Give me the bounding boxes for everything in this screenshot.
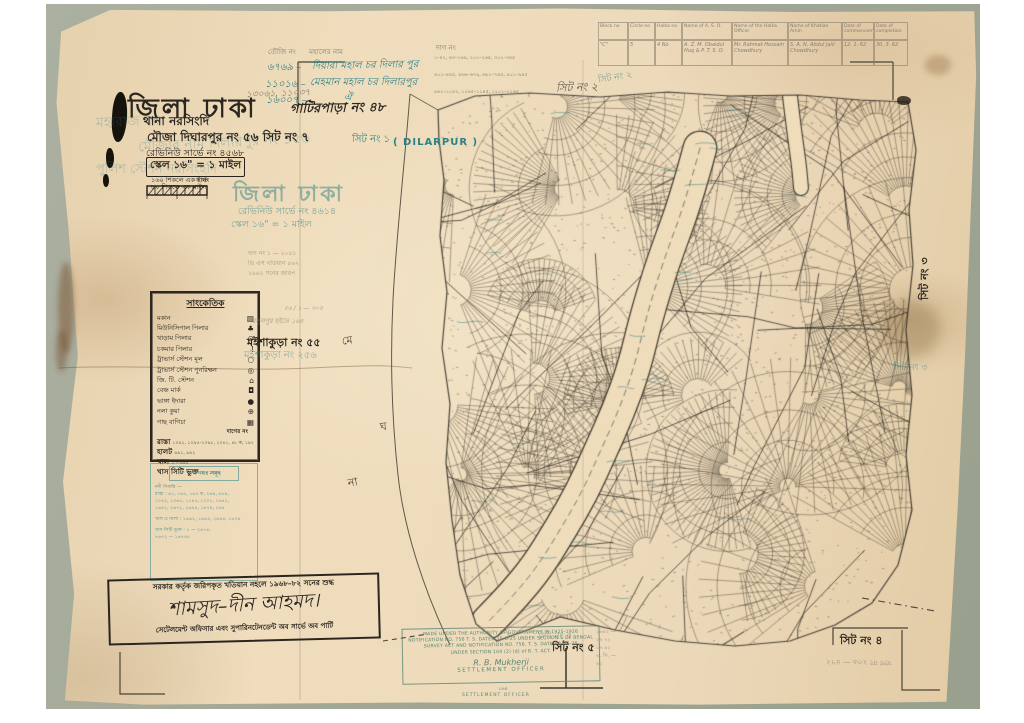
survey-cell: "C" (598, 40, 628, 66)
survey-cell: 12. 1. 62 (842, 40, 874, 66)
survey-col-header: Halka no (655, 22, 682, 40)
legend-box: সাংকেতিক মকান▨ মিউনিসিপাল পিলার♣ খাড়াম … (150, 291, 260, 462)
scale-line: স্কেল ১৬" = ১ মাইল (146, 157, 245, 177)
river-name-letter: ঘ (379, 418, 387, 438)
boundary-dag-numbers: ৬৯১, ৬৯২ (174, 451, 195, 456)
survey-col-header: Block no (598, 22, 628, 40)
touji-row-name: মেহমান মহাল চর দিলারপুর (310, 75, 417, 92)
well-icon: ● (247, 398, 254, 405)
survey-col-header: Date of completion (874, 22, 908, 40)
legend-item: খাড়াম পিলার⊙ (157, 334, 254, 344)
sheet-4-reversed-note: দাগ নং ২৩৬ — ৪৭২ (826, 655, 891, 667)
dag-block-line: নদী সিকস্তি — (155, 484, 253, 491)
scanned-cadastral-map-sheet: মহারাজ নর মৌজার নাম দিলারপুর নং ১৫৬ পুলি… (0, 0, 1024, 723)
touji-row-name: ঐ (344, 90, 352, 107)
boundary-dag-numbers: ১০৯২, ১০৯৫–১০৯৮, ২০৪১, ৪৮ ক, ১৯২ (173, 441, 254, 446)
boundary-label: রাস্তা (157, 437, 170, 446)
pencil-number-column: ১৬৪২ — ২৬ ৭২ ১৬ ৯২ এ. সি. — ৪২ (596, 628, 616, 668)
legend-item-label: গাছ বাগিচা (157, 417, 186, 428)
attestation-stamp-box: সরকার কর্তৃক জরিপকৃত খতিয়ান নহলে ১৯৬৮–৮… (107, 572, 381, 645)
legend-item: মকান▨ (157, 313, 254, 323)
pencil-note: ১৯৬২ সনের জরিপ (248, 268, 295, 279)
legend-item: ভাঙ্গা ইদারা● (157, 396, 254, 406)
stamp-below-title: SETTLEMENT OFFICER (462, 693, 530, 698)
sheet-4-label: সিট নং ৪ (840, 632, 883, 651)
touji-table-header: তৌজি নং মহালের নাম (268, 46, 343, 58)
survey-col-header: Name of A. S. O. (682, 22, 732, 40)
dag-block-line: রাস্তা : ৬১, ১৬২, ১৬৭ ক, ২৬৯, ৬৮৯, (155, 491, 253, 498)
sheet-3-label-teal: সিট নং ৩ (893, 360, 927, 375)
dag-block-line: ১৬৯২, ২৬৭২, ২৬৯৪, ১৬৭৯, ২৬৫ (155, 505, 253, 512)
river-name-letter: মে (341, 331, 354, 351)
survey-cell: 4 No (655, 40, 682, 66)
legend-item-label: বেঞ্চ মার্ক (157, 385, 181, 396)
sheet-3-label: সিট নং ৩ (916, 257, 935, 300)
gt-station-icon: ⌂ (249, 377, 254, 384)
legend-item-label: নলা কুয়া (157, 406, 180, 417)
touji-row-dags: ১–৪২, ৬৩–১৬৯, ২০১–২৬৫, ৩০১–৩৪৫ (434, 56, 584, 62)
sheet-2-label: সিট নং ২ (556, 78, 598, 98)
survey-cell: Mr. Rahmat Hossain Chowdhury (732, 40, 788, 66)
village-name-moishakura-teal: মইশাকুড়া নং ২৫৬ (244, 348, 317, 365)
survey-cell: 5 (628, 40, 655, 66)
sheet-no-1-teal: সিট নং ১ (352, 132, 390, 149)
legend-item: মিউনিসিপাল পিলার♣ (157, 323, 254, 333)
ink-blot (897, 96, 911, 105)
mouza-line: মৌজা দিঘারপুর নং ৫৬ সিট নং ৭ (147, 129, 309, 149)
bench-mark-icon: ◘ (248, 387, 254, 394)
touji-row-no: ৬৭৬৯ – (267, 60, 301, 77)
touji-row-no: ১৬০০৭ – (266, 93, 307, 110)
survey-cell: 30. 3. 62 (874, 40, 908, 66)
legend-dag-header: দাগের নং (157, 428, 248, 437)
survey-col-header: Name of the Halka Officer (732, 22, 788, 40)
ghost-scale-line: স্কেল ১৬" = ১ মাইল (231, 218, 312, 233)
dilarpur-latin-label: ( DILARPUR ) (393, 137, 478, 148)
legend-boundary-row: রাস্তা ১০৯২, ১০৯৫–১০৯৮, ২০৪১, ৪৮ ক, ১৯২ (157, 437, 254, 447)
touji-row-name: দিয়ারা মহাল চর দিলার পুর (312, 57, 419, 76)
survey-progress-table: Block no Circle no Halka no Name of A. S… (598, 22, 908, 66)
pencil-number-line: ১৬ ৯২ (596, 644, 616, 652)
dag-block-line: ১০৪২, ১০৬৫, ১১৪৫, ১২০১, ১৬৪২, (155, 498, 253, 505)
legend-title: সাংকেতিক (157, 296, 254, 311)
graphic-scale-bar (146, 182, 210, 204)
legend-item-label: জি. টি. স্টেশন (157, 375, 194, 386)
authority-stamp-box: MADE UNDER THE AUTHORITY OF GOVERNMENT I… (402, 625, 601, 684)
legend-item: বেঞ্চ মার্ক◘ (157, 386, 254, 396)
pencil-village-note: রসুলপুর হইতে ১৬৪ (252, 316, 304, 327)
pencil-number-line: ৪২ (596, 660, 616, 668)
legend-item-label: চকমার পিলার (157, 344, 192, 355)
touji-dag-header: দাগ নং (436, 42, 456, 54)
legend-item-label: ট্রাভার্স স্টেশন পুনরিক্ষন (157, 365, 217, 376)
dag-numbers-block: দাগ নম্বর সমূহ নদী সিকস্তি — রাস্তা : ৬১… (150, 463, 258, 581)
legend-boundary-row: হালট ৬৯১, ৬৯২ (157, 447, 254, 457)
dag-block-line: ৭৬৭২ — ১৬৭৪৫ (155, 534, 253, 541)
dag-block-line: খাল ও নালা : ১৯৬২, ১৯৬৪, ২৬৯৪, ১৬৭৯ (155, 516, 253, 523)
legend-item-label: ভাঙ্গা ইদারা (157, 396, 186, 407)
legend-item: নলা কুয়া⊕ (157, 407, 254, 417)
survey-cell: A. Z. M. Obaidul Huq & P. T. S. O. (682, 40, 732, 66)
pencil-number-line: ১৬৪২ — (596, 628, 616, 636)
legend-item: ট্রাভার্স স্টেশন মূল○ (157, 355, 254, 365)
boundary-label: হালট (157, 447, 172, 456)
dag-block-header: দাগ নম্বর সমূহ (169, 466, 240, 481)
legend-item: চকমার পিলার! (157, 344, 254, 354)
survey-cell: S. A. N. Abdul Jalil Chowdhury (788, 40, 842, 66)
tube-well-icon: ⊕ (248, 408, 254, 415)
orchard-icon: ▦ (247, 419, 254, 426)
legend-item-label: মকান (157, 313, 171, 324)
legend-item-label: মিউনিসিপাল পিলার (157, 323, 208, 334)
legend-item: ট্রাভার্স স্টেশন পুনরিক্ষন◎ (157, 365, 254, 375)
pencil-number-line: ২৬ ৭২ (596, 636, 616, 644)
pencil-number-line: এ. সি. — (596, 652, 616, 660)
pencil-village-note: ৫৬ / ১ — ৩০৪ (284, 303, 323, 314)
dag-block-line: খাস সিটি ভুক্ত : ১ — ২৬৭৪, (155, 527, 253, 534)
legend-item-label: ট্রাভার্স স্টেশন মূল (157, 354, 203, 365)
survey-col-header: Date of commencement (842, 22, 874, 40)
touji-row-no: ১১০১৬ – (265, 77, 306, 94)
survey-col-header: Circle no (628, 22, 655, 40)
legend-item: জি. টি. স্টেশন⌂ (157, 375, 254, 385)
survey-col-header: Name of Khatian Amin (788, 22, 842, 40)
legend-item-label: খাড়াম পিলার (157, 333, 191, 344)
traverse-revision-icon: ◎ (247, 367, 254, 374)
legend-item: গাছ বাগিচা▦ (157, 417, 254, 427)
